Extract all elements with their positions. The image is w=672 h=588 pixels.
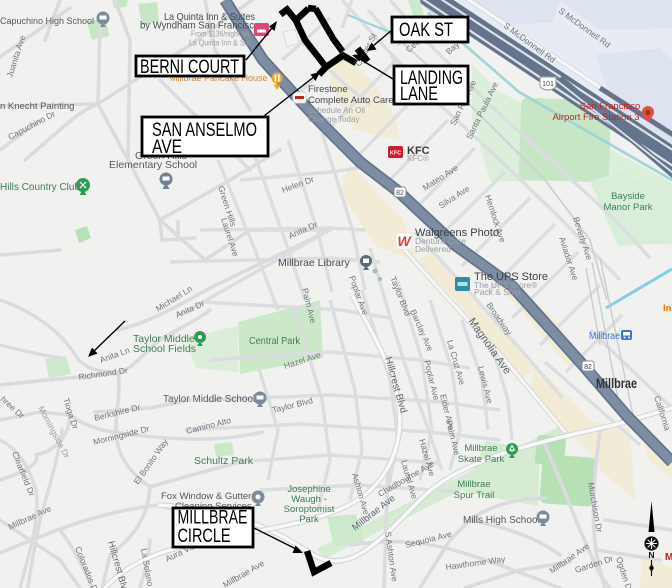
svg-text:82: 82: [584, 364, 592, 371]
svg-text:Change Today: Change Today: [308, 115, 359, 124]
svg-text:LANE: LANE: [400, 84, 438, 105]
svg-text:Pack & Ship: Pack & Ship: [474, 287, 521, 297]
svg-text:Delivered: Delivered: [415, 244, 451, 254]
svg-text:Schultz Park: Schultz Park: [194, 455, 254, 467]
svg-text:Bayside: Bayside: [611, 191, 645, 202]
svg-text:Schedule An Oil: Schedule An Oil: [308, 106, 365, 115]
svg-text:Millbrae: Millbrae: [596, 376, 637, 391]
svg-text:M: M: [665, 552, 672, 563]
svg-text:Park: Park: [299, 514, 319, 525]
svg-text:School Fields: School Fields: [133, 343, 196, 355]
svg-text:Elementary School: Elementary School: [109, 159, 197, 171]
svg-text:Capuchino High School: Capuchino High School: [0, 16, 94, 26]
svg-text:Millbrae: Millbrae: [457, 479, 490, 490]
svg-text:N: N: [648, 550, 654, 560]
svg-text:KFC: KFC: [390, 151, 401, 157]
svg-text:Millbrae Library: Millbrae Library: [278, 257, 351, 269]
svg-text:Hills Country Club: Hills Country Club: [0, 182, 80, 193]
svg-text:In: In: [663, 303, 672, 314]
svg-text:Central Park: Central Park: [249, 335, 301, 347]
svg-text:Taylor Middle School: Taylor Middle School: [163, 394, 255, 405]
svg-text:Firestone: Firestone: [308, 84, 348, 95]
svg-text:Spur Trail: Spur Trail: [454, 490, 495, 501]
svg-text:W: W: [397, 233, 412, 249]
svg-text:Millbrae: Millbrae: [589, 331, 620, 342]
svg-text:82: 82: [396, 190, 404, 197]
svg-text:Skate Park: Skate Park: [458, 454, 505, 465]
svg-text:San Francisco: San Francisco: [580, 101, 641, 112]
svg-text:n Knecht Painting: n Knecht Painting: [0, 101, 74, 112]
svg-text:OAK ST: OAK ST: [399, 20, 453, 41]
svg-text:KFC®: KFC®: [407, 154, 429, 163]
svg-text:Complete Auto Care: Complete Auto Care: [308, 95, 394, 106]
svg-text:La Quinta Inn & Sui: La Quinta Inn & Sui: [189, 38, 250, 48]
svg-text:Airport Fire Station 3: Airport Fire Station 3: [552, 112, 639, 123]
svg-text:AVE: AVE: [152, 137, 182, 158]
svg-text:Millbrae: Millbrae: [464, 443, 497, 454]
svg-text:101: 101: [542, 81, 554, 88]
svg-text:Mills High School: Mills High School: [463, 515, 540, 526]
svg-text:Manor Park: Manor Park: [603, 202, 652, 213]
svg-text:BERNI COURT: BERNI COURT: [140, 57, 239, 78]
svg-text:CIRCLE: CIRCLE: [178, 526, 231, 547]
